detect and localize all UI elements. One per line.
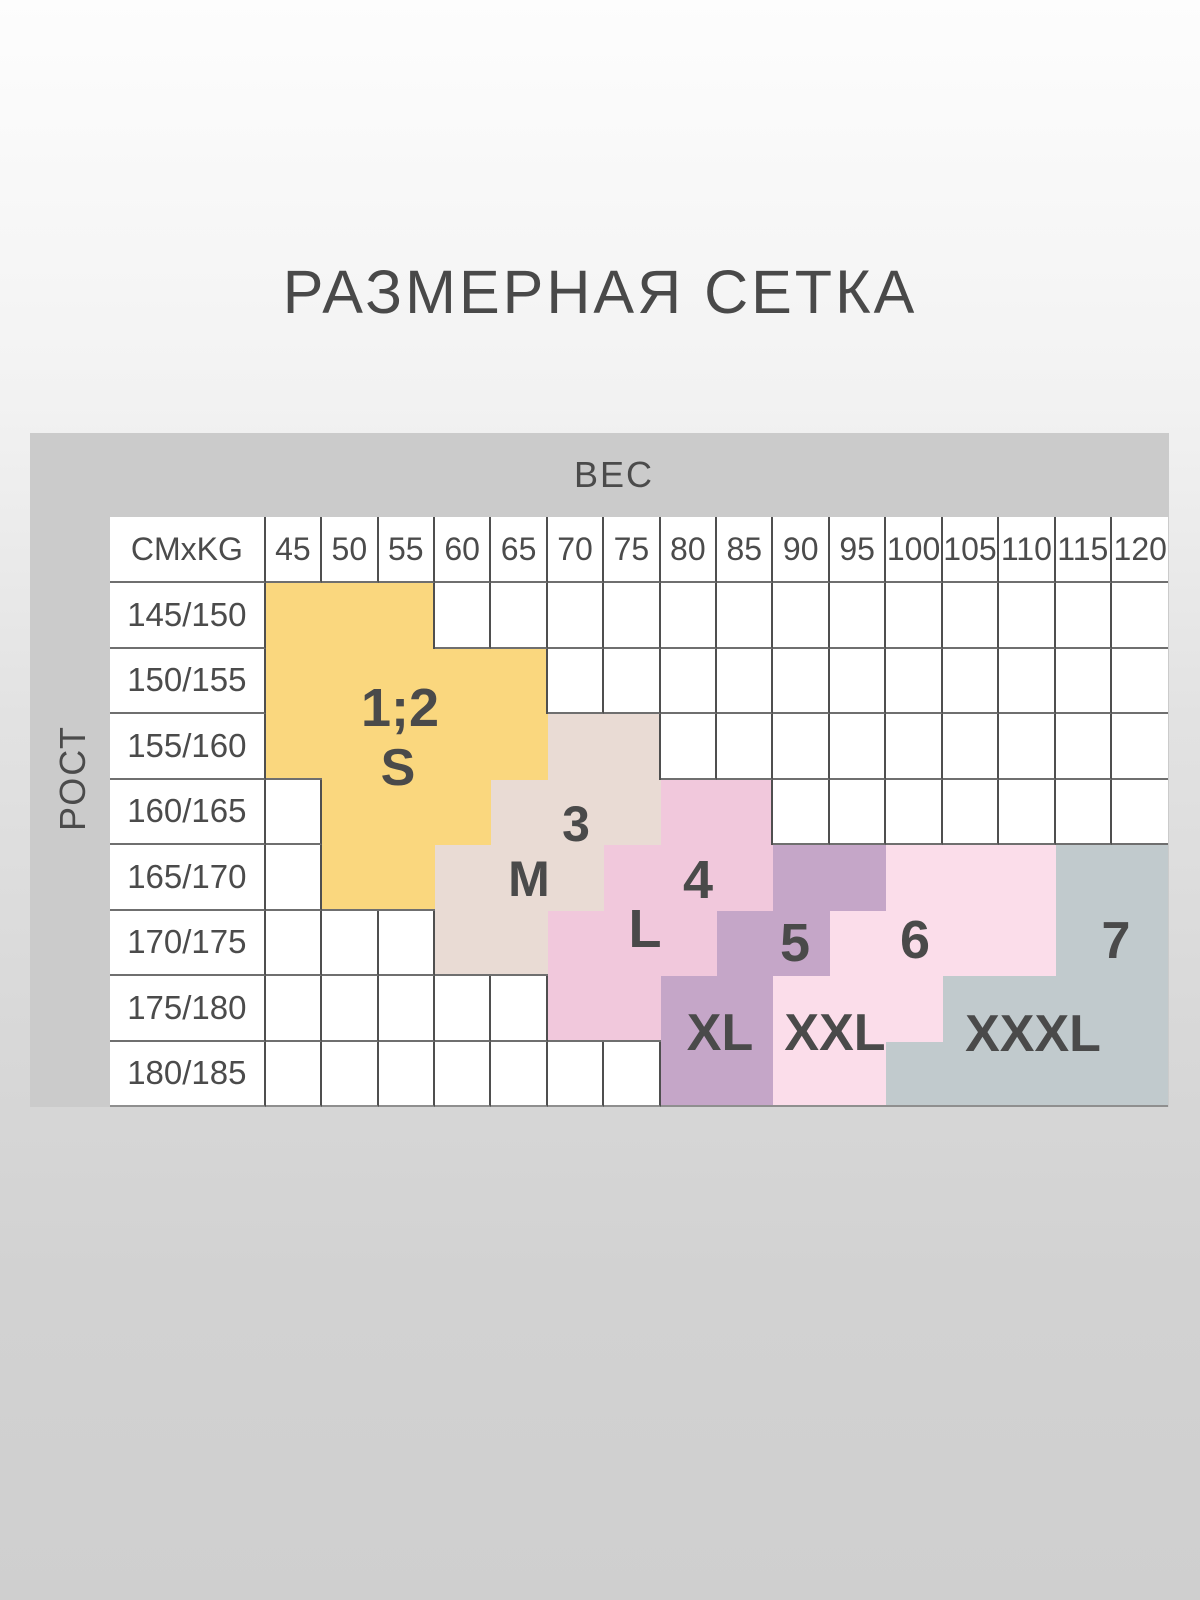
grid-cell	[266, 780, 322, 846]
grid-cell	[943, 1042, 999, 1108]
grid-cell	[604, 649, 660, 715]
grid-cell	[1112, 714, 1168, 780]
grid-cell	[491, 976, 547, 1042]
weight-header-cell: 50	[322, 517, 378, 583]
grid-cell	[943, 845, 999, 911]
weight-header-cell: 70	[548, 517, 604, 583]
grid-cell	[266, 583, 322, 649]
grid-cell	[491, 780, 547, 846]
weight-header-cell: 100	[886, 517, 942, 583]
grid-cell	[773, 649, 829, 715]
grid-cell	[886, 1042, 942, 1108]
grid-cell	[491, 845, 547, 911]
height-row-label: 155/160	[110, 714, 266, 780]
grid-cell	[604, 714, 660, 780]
grid-cell	[999, 649, 1055, 715]
grid-cell	[435, 780, 491, 846]
grid-cell	[379, 911, 435, 977]
grid-cell	[548, 714, 604, 780]
grid-cell	[548, 976, 604, 1042]
grid-cell	[830, 976, 886, 1042]
grid-cell	[1056, 911, 1112, 977]
grid-cell	[717, 714, 773, 780]
grid-cell	[548, 780, 604, 846]
grid-cell	[886, 649, 942, 715]
grid-cell	[322, 780, 378, 846]
weight-header-cell: 75	[604, 517, 660, 583]
height-row-label: 150/155	[110, 649, 266, 715]
size-chart-page: РАЗМЕРНАЯ СЕТКА ВЕС РОСТ CMxKG4550556065…	[0, 0, 1200, 1600]
units-corner-cell: CMxKG	[110, 517, 266, 583]
grid-cell	[491, 911, 547, 977]
grid-cell	[1112, 649, 1168, 715]
weight-header-cell: 60	[435, 517, 491, 583]
grid-cell	[773, 583, 829, 649]
grid-cell	[717, 845, 773, 911]
grid-cell	[1056, 976, 1112, 1042]
grid-cell	[491, 1042, 547, 1108]
grid-cell	[379, 714, 435, 780]
grid-cell	[717, 911, 773, 977]
grid-cell	[266, 714, 322, 780]
grid-cell	[661, 714, 717, 780]
grid-cell	[435, 714, 491, 780]
grid-cell	[886, 583, 942, 649]
grid-cell	[266, 1042, 322, 1108]
grid-cell	[604, 845, 660, 911]
weight-header-cell: 95	[830, 517, 886, 583]
grid-cell	[604, 976, 660, 1042]
grid-cell	[999, 714, 1055, 780]
grid-cell	[379, 1042, 435, 1108]
grid-cell	[379, 780, 435, 846]
grid-cell	[886, 911, 942, 977]
grid-cell	[886, 845, 942, 911]
height-axis-label: РОСТ	[55, 725, 91, 831]
page-title: РАЗМЕРНАЯ СЕТКА	[0, 262, 1200, 323]
grid-cell	[322, 714, 378, 780]
grid-cell	[830, 1042, 886, 1108]
grid-cell	[886, 976, 942, 1042]
grid-cell	[999, 911, 1055, 977]
grid-cell	[717, 780, 773, 846]
grid-cell	[1056, 714, 1112, 780]
height-row-label: 145/150	[110, 583, 266, 649]
grid-cell	[435, 911, 491, 977]
grid-cell	[379, 649, 435, 715]
grid-cell	[943, 649, 999, 715]
weight-header-cell: 55	[379, 517, 435, 583]
grid-cell	[548, 649, 604, 715]
grid-cell	[491, 714, 547, 780]
grid-cell	[1112, 780, 1168, 846]
grid-cell	[661, 583, 717, 649]
grid-cell	[322, 976, 378, 1042]
grid-cell	[322, 911, 378, 977]
grid-cell	[1112, 911, 1168, 977]
grid-cell	[773, 911, 829, 977]
height-row-label: 180/185	[110, 1042, 266, 1108]
grid-cell	[379, 976, 435, 1042]
grid-cell	[830, 583, 886, 649]
weight-header-cell: 90	[773, 517, 829, 583]
grid-cell	[943, 583, 999, 649]
size-grid-table: CMxKG45505560657075808590951001051101151…	[110, 517, 1168, 1107]
grid-cell	[604, 780, 660, 846]
grid-cell	[773, 845, 829, 911]
grid-cell	[548, 1042, 604, 1108]
grid-cell	[661, 649, 717, 715]
grid-cell	[999, 1042, 1055, 1108]
grid-cell	[266, 976, 322, 1042]
grid-cell	[266, 911, 322, 977]
grid-cell	[773, 1042, 829, 1108]
grid-cell	[548, 911, 604, 977]
grid-cell	[1056, 780, 1112, 846]
grid-cell	[1112, 845, 1168, 911]
grid-cell	[1112, 976, 1168, 1042]
weight-header-cell: 110	[999, 517, 1055, 583]
weight-axis-label: ВЕС	[574, 457, 654, 493]
grid-cell	[661, 845, 717, 911]
grid-cell	[830, 649, 886, 715]
weight-header-cell: 65	[491, 517, 547, 583]
grid-cell	[435, 845, 491, 911]
grid-cell	[322, 583, 378, 649]
grid-cell	[717, 649, 773, 715]
grid-cell	[717, 1042, 773, 1108]
grid-cell	[1112, 1042, 1168, 1108]
height-row-label: 170/175	[110, 911, 266, 977]
weight-header-cell: 120	[1112, 517, 1168, 583]
grid-cell	[322, 1042, 378, 1108]
grid-cell	[717, 583, 773, 649]
weight-header-cell: 80	[661, 517, 717, 583]
grid-cell	[999, 845, 1055, 911]
grid-cell	[830, 911, 886, 977]
grid-cell	[604, 1042, 660, 1108]
grid-cell	[1056, 583, 1112, 649]
grid-cell	[830, 780, 886, 846]
height-row-label: 160/165	[110, 780, 266, 846]
weight-header-cell: 85	[717, 517, 773, 583]
height-row-label: 165/170	[110, 845, 266, 911]
grid-cell	[491, 583, 547, 649]
grid-cell	[773, 780, 829, 846]
grid-cell	[999, 976, 1055, 1042]
grid-cell	[830, 845, 886, 911]
grid-cell	[886, 714, 942, 780]
grid-cell	[830, 714, 886, 780]
grid-cell	[661, 1042, 717, 1108]
grid-cell	[435, 976, 491, 1042]
grid-cell	[266, 649, 322, 715]
weight-header-cell: 105	[943, 517, 999, 583]
grid-cell	[886, 780, 942, 846]
grid-cell	[604, 583, 660, 649]
weight-header-cell: 45	[266, 517, 322, 583]
grid-cell	[379, 583, 435, 649]
grid-cell	[548, 583, 604, 649]
grid-cell	[661, 780, 717, 846]
grid-cell	[322, 845, 378, 911]
height-row-label: 175/180	[110, 976, 266, 1042]
grid-cell	[435, 649, 491, 715]
grid-cell	[1112, 583, 1168, 649]
grid-cell	[999, 780, 1055, 846]
grid-cell	[661, 976, 717, 1042]
grid-cell	[266, 845, 322, 911]
grid-cell	[491, 649, 547, 715]
weight-header-cell: 115	[1056, 517, 1112, 583]
grid-cell	[1056, 649, 1112, 715]
grid-cell	[661, 911, 717, 977]
grid-cell	[943, 976, 999, 1042]
grid-cell	[1056, 1042, 1112, 1108]
grid-cell	[322, 649, 378, 715]
grid-cell	[943, 780, 999, 846]
grid-cell	[943, 911, 999, 977]
grid-cell	[943, 714, 999, 780]
grid-cell	[1056, 845, 1112, 911]
grid-cell	[379, 845, 435, 911]
grid-cell	[435, 583, 491, 649]
grid-cell	[548, 845, 604, 911]
grid-cell	[999, 583, 1055, 649]
grid-cell	[717, 976, 773, 1042]
grid-cell	[773, 976, 829, 1042]
grid-cell	[435, 1042, 491, 1108]
grid-cell	[604, 911, 660, 977]
grid-cell	[773, 714, 829, 780]
